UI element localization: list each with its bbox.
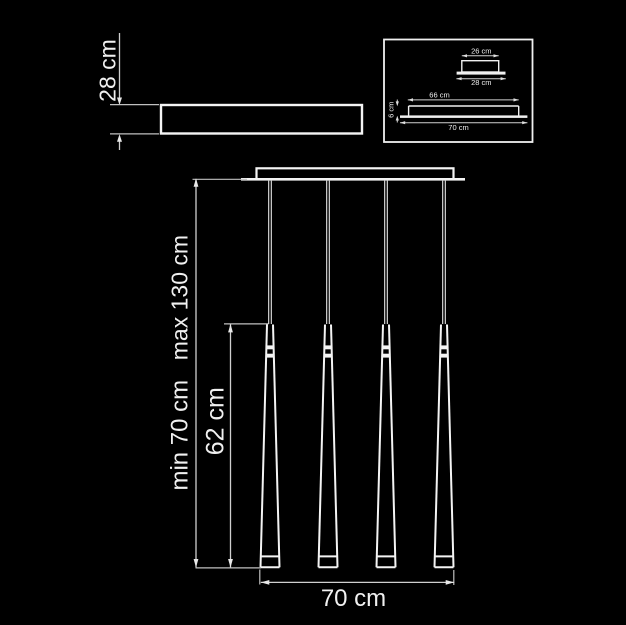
svg-text:28 cm: 28 cm [95,39,121,102]
svg-text:70 cm: 70 cm [321,585,386,612]
svg-text:26 cm: 26 cm [471,47,491,56]
svg-text:66 cm: 66 cm [429,91,449,100]
svg-text:62 cm: 62 cm [202,387,230,455]
svg-text:max 130 cm: max 130 cm [167,235,193,360]
svg-text:70 cm: 70 cm [448,123,468,132]
svg-text:6 cm: 6 cm [387,102,396,118]
svg-text:28 cm: 28 cm [471,78,491,87]
svg-text:min 70 cm: min 70 cm [167,380,194,491]
